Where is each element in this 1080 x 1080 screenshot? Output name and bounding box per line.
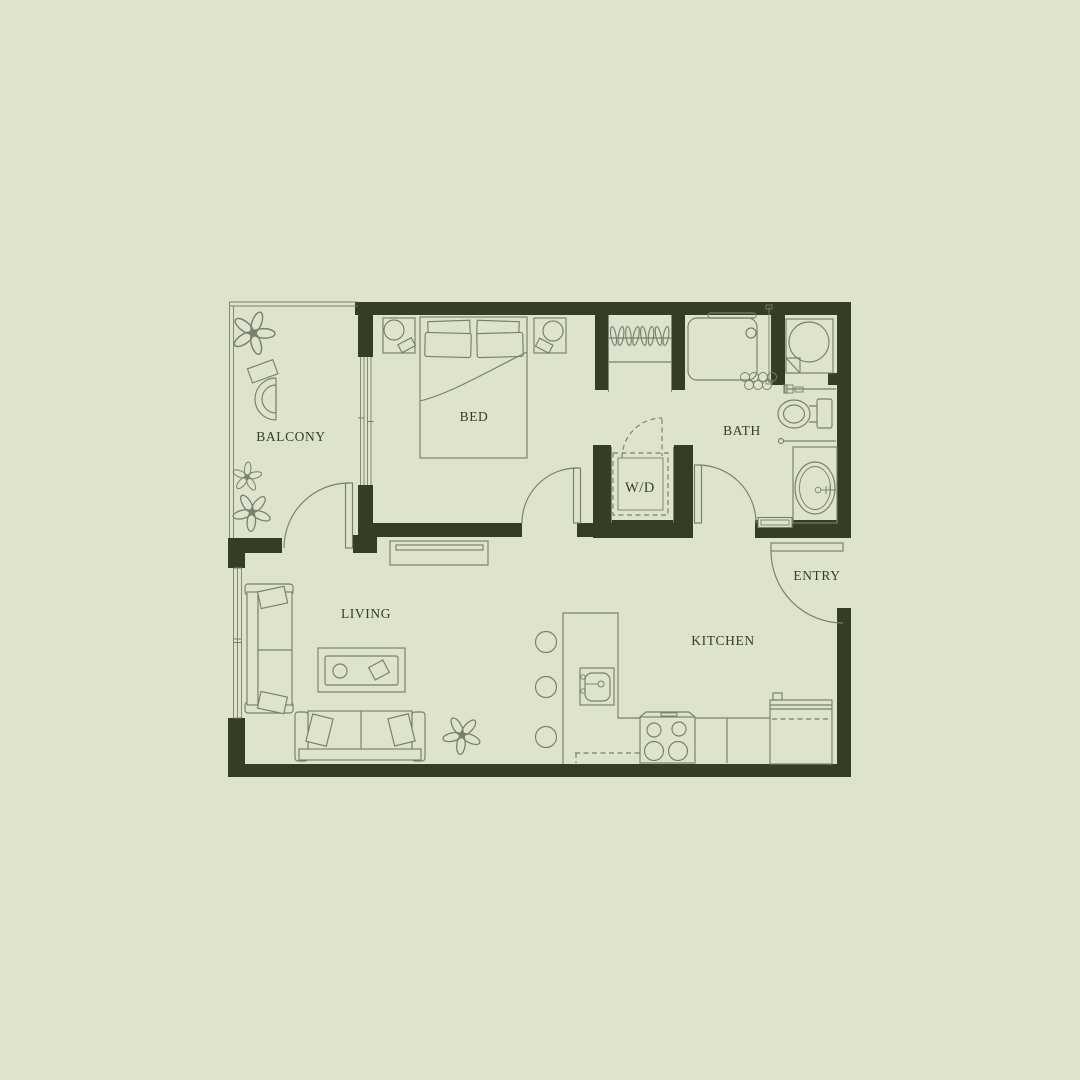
bath-mat bbox=[758, 518, 792, 528]
wall-bottom bbox=[228, 764, 851, 777]
door-leaf bbox=[346, 483, 353, 548]
room-label-wd: W/D bbox=[625, 480, 655, 496]
wall-laundry-south bbox=[593, 520, 693, 538]
canvas-background bbox=[0, 0, 1080, 1080]
wall-laundry-left bbox=[593, 445, 611, 528]
room-label-kitchen: KITCHEN bbox=[691, 633, 754, 648]
room-label-living: LIVING bbox=[341, 606, 391, 621]
entry-door-leaf bbox=[771, 543, 843, 551]
wall-heater-stub bbox=[828, 373, 851, 385]
water-heater bbox=[786, 319, 833, 373]
wall-bedroom-west-upper bbox=[358, 302, 373, 357]
door-leaf bbox=[574, 468, 581, 523]
room-label-entry: ENTRY bbox=[793, 568, 840, 583]
range-stove bbox=[640, 712, 695, 763]
wall-right-upper bbox=[837, 302, 851, 538]
room-label-bath: BATH bbox=[723, 423, 761, 438]
toilet-tank bbox=[817, 399, 832, 428]
loveseat bbox=[245, 584, 293, 714]
room-label-balcony: BALCONY bbox=[256, 429, 325, 444]
wall-bedroom-west-lower bbox=[358, 485, 373, 538]
sofa bbox=[295, 711, 425, 761]
floor-plan: BALCONY BED bbox=[0, 0, 1080, 1080]
toilet bbox=[778, 399, 832, 428]
wall-left-corner bbox=[228, 718, 245, 777]
wall-closet-right bbox=[672, 302, 685, 390]
wall-closet-left bbox=[595, 302, 608, 390]
bed bbox=[420, 317, 527, 458]
wall-bedroom-south bbox=[373, 523, 522, 537]
wall-right-lower bbox=[837, 608, 851, 777]
door-leaf bbox=[695, 465, 702, 523]
wall-balcony-south bbox=[228, 538, 282, 553]
wall-balcony-door-post bbox=[353, 535, 377, 553]
room-label-bed: BED bbox=[460, 409, 489, 424]
wall-balcony-step bbox=[228, 553, 245, 568]
wall-laundry-right bbox=[674, 445, 693, 523]
refrigerator bbox=[770, 693, 832, 764]
